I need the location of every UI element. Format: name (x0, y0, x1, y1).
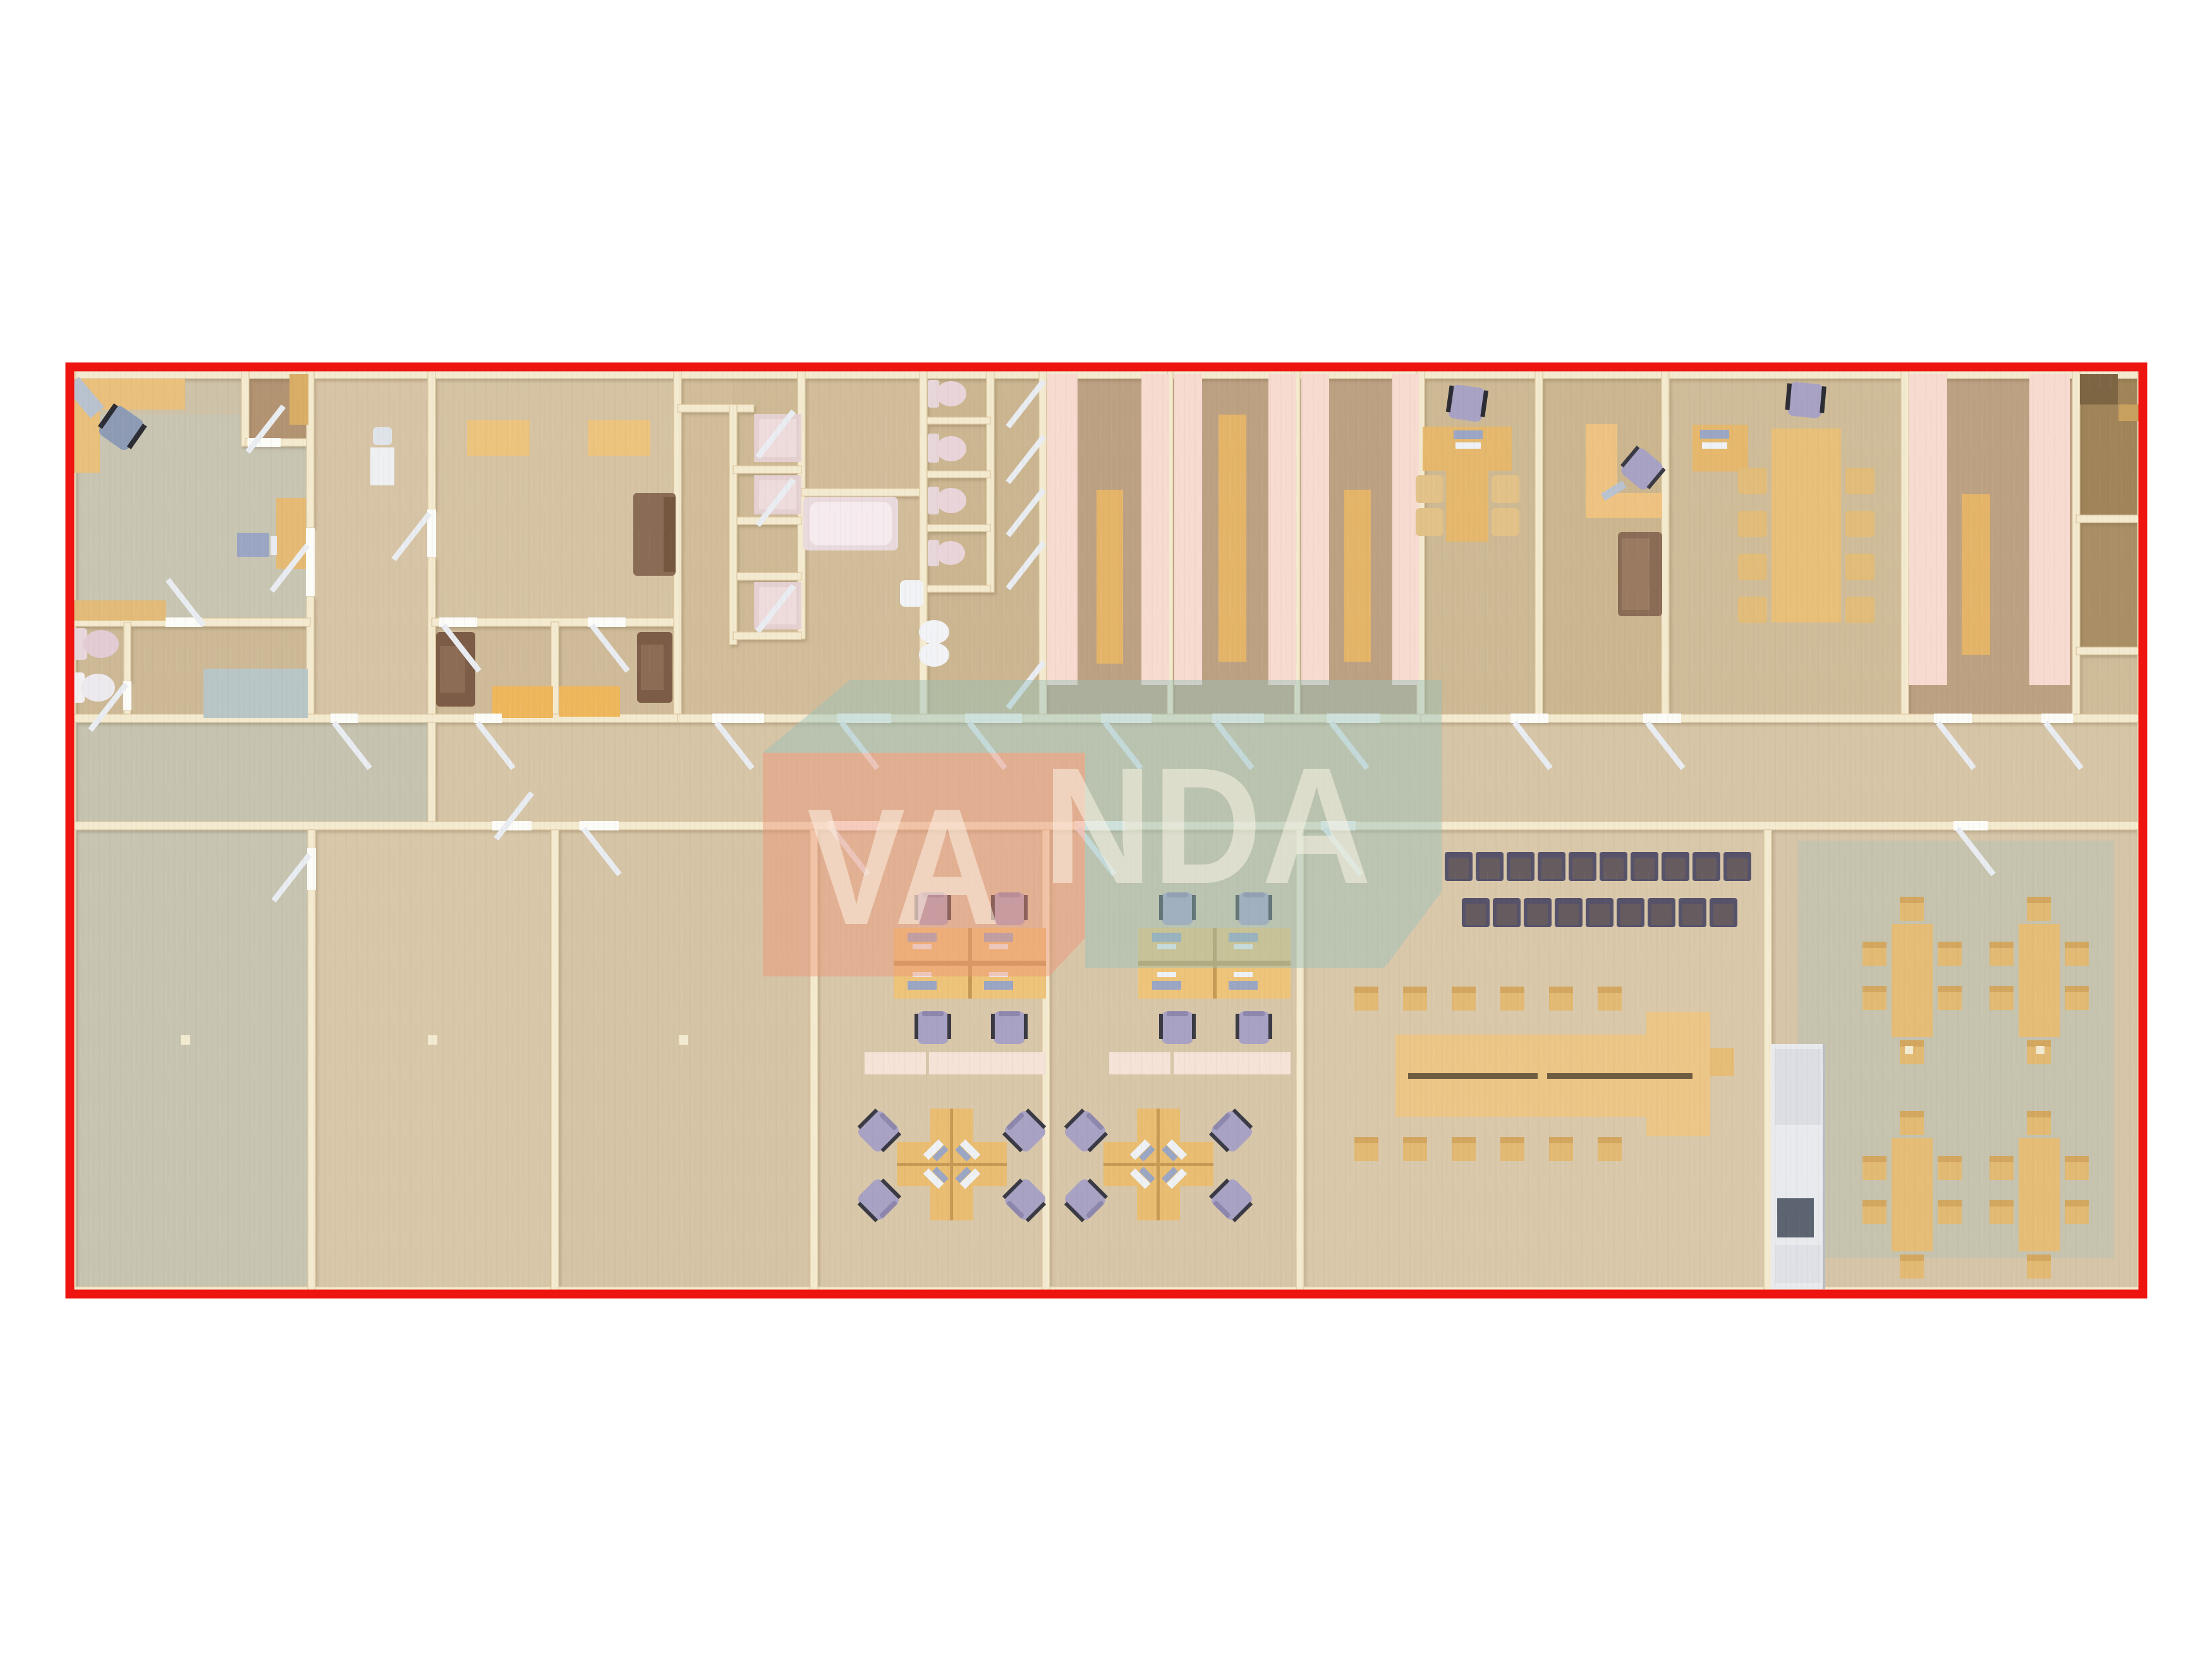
svg-text:VA: VA (807, 774, 1000, 959)
svg-text:NDA: NDA (1043, 733, 1371, 918)
